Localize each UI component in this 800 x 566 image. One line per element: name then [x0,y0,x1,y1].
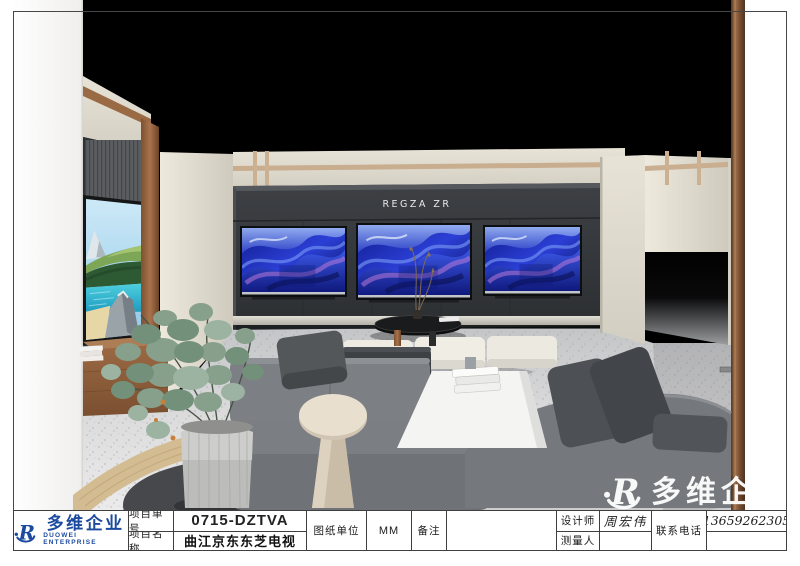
company-name-cn: 多维企业 [47,515,125,532]
rendering-viewport: R [13,0,745,510]
designer-value: 周宏伟 [599,511,651,531]
remark-value [446,511,556,550]
designer-label: 设计师 [556,511,599,531]
phone-label: 联系电话 [651,511,706,550]
company-name-en: DUOWEI ENTERPRISE [43,533,128,546]
brand-logo-icon [14,517,40,545]
brand-logo-watermark [603,466,649,510]
regza-sign: REGZA ZR [382,199,451,210]
blind-panel [85,140,145,202]
magazine-stack [452,366,501,393]
book-stack [79,345,104,361]
drawing-sheet: R [0,0,800,566]
project-name-value: 曲江京东东芝电视 [173,531,306,551]
tv-screen-left [240,226,347,300]
tv-screen-center [356,223,472,303]
nature-tv-screen [86,199,142,340]
chrome-object [465,357,476,369]
phone-value-row2 [706,531,786,551]
tv-screen-right [483,225,582,299]
unit-value: MM [366,511,411,550]
project-no-value: 0715-DZTVA [173,511,306,531]
unit-label: 图纸单位 [306,511,366,550]
cream-pillar [600,155,645,344]
watermark: 多维企业 [603,466,745,510]
lumbar-cushion [652,413,728,453]
title-block: 多维企业 DUOWEI ENTERPRISE 项目单号 0715-DZTVA 图… [13,510,787,551]
left-white-wall [13,0,83,510]
phone-value: 13659262305 [706,511,786,531]
surveyor-value [599,531,651,551]
remark-label: 备注 [411,511,446,550]
project-name-label: 项目名称 [128,531,173,551]
wood-pillar [731,0,745,510]
surveyor-label: 测量人 [556,531,599,551]
watermark-text: 多维企业 [651,467,745,510]
showroom-rendering: R [13,0,745,510]
project-no-label: 项目单号 [128,511,173,531]
company-logo: 多维企业 DUOWEI ENTERPRISE [14,511,128,550]
door-opening [645,250,728,345]
